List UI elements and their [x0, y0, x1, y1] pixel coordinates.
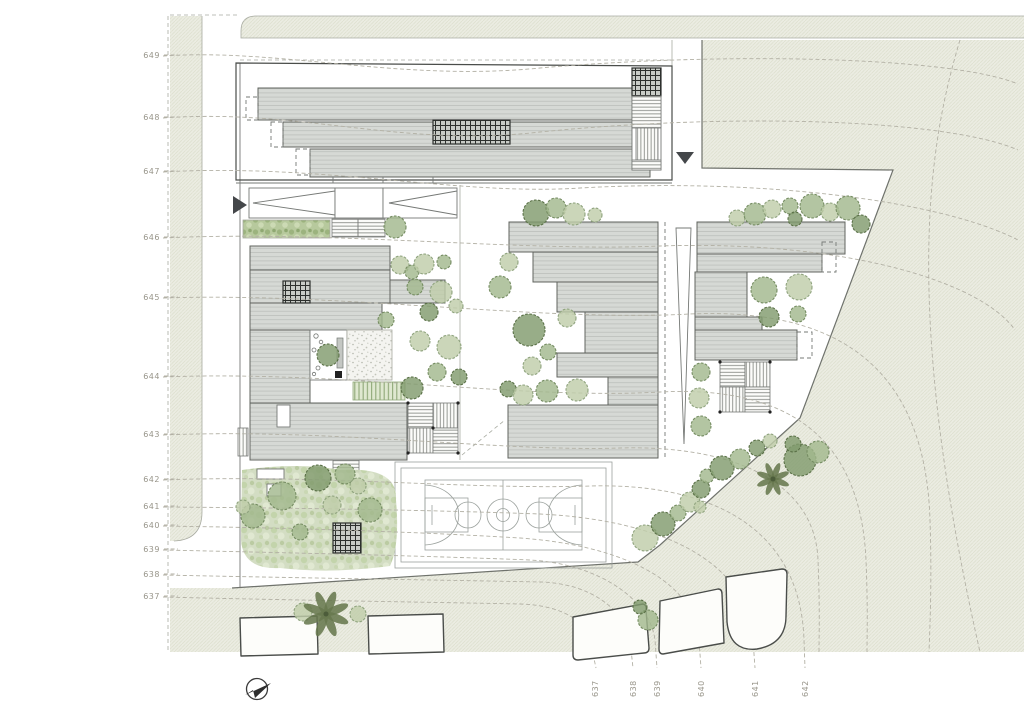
tree: [692, 363, 710, 381]
tree: [751, 277, 777, 303]
elevation-label-638: 638: [143, 570, 160, 579]
tree: [744, 203, 766, 225]
entrance-stairs: [332, 219, 385, 237]
building-north-stair-flight-3: [632, 160, 661, 170]
tree: [852, 215, 870, 233]
deck-square: [433, 403, 458, 428]
tree: [523, 200, 549, 226]
central-corridor: [460, 185, 505, 460]
elevation-label-bottom-640: 640: [697, 680, 706, 697]
tree: [694, 501, 706, 513]
tree: [268, 482, 296, 510]
elevation-label-642: 642: [143, 475, 160, 484]
tree: [317, 344, 339, 366]
garden-pergola-grid: [333, 523, 361, 553]
existing-building-blob-3: [726, 569, 787, 649]
retaining-wedge: [676, 228, 691, 444]
site-plan-canvas: 649648647646645644643642641640639638637 …: [0, 0, 1024, 724]
court-playing-field: [425, 480, 582, 550]
basketball-court: [395, 462, 612, 568]
north-arrow-icon: [245, 679, 271, 700]
tree: [729, 210, 745, 226]
tree: [786, 274, 812, 300]
tree: [430, 281, 452, 303]
building-east-deck: [718, 360, 771, 413]
tree: [350, 606, 366, 622]
building-west-deck: [406, 401, 459, 454]
deck-square: [745, 387, 770, 412]
tree: [588, 208, 602, 222]
court-key-left: [425, 498, 468, 532]
elevation-label-640: 640: [143, 521, 160, 530]
patio-room-stove: [335, 371, 342, 378]
building-west-stairs-west: [238, 428, 248, 456]
deck-post: [406, 401, 409, 404]
building-west: [238, 246, 460, 472]
elevation-label-643: 643: [143, 430, 160, 439]
elevation-label-bottom-641: 641: [751, 680, 760, 697]
tree: [437, 335, 461, 359]
elevation-label-bottom-638: 638: [629, 680, 638, 697]
existing-building-rect-2: [368, 614, 444, 654]
tree: [437, 255, 451, 269]
elevation-label-641: 641: [143, 502, 160, 511]
building-west-roof-opening: [277, 405, 290, 427]
tree: [633, 600, 647, 614]
tree: [410, 331, 430, 351]
deck-post: [718, 360, 721, 363]
elevation-label-644: 644: [143, 372, 160, 381]
court-apron: [395, 462, 612, 568]
tree: [489, 276, 511, 298]
tree: [691, 416, 711, 436]
building-north-stair-flight-2: [636, 128, 658, 160]
tree: [350, 478, 366, 494]
elevation-label-639: 639: [143, 545, 160, 554]
tree: [546, 198, 566, 218]
tree: [540, 344, 556, 360]
existing-building-blob-2: [659, 589, 724, 654]
deck-post: [768, 360, 771, 363]
tree: [449, 299, 463, 313]
tree: [563, 203, 585, 225]
building-north-stair-flight-1: [632, 96, 661, 128]
tree: [384, 216, 406, 238]
elevation-label-646: 646: [143, 233, 160, 242]
tree: [407, 279, 423, 295]
tree: [513, 385, 533, 405]
deck-square: [433, 428, 458, 453]
tree: [782, 198, 798, 214]
tree: [420, 303, 438, 321]
building-west-pergola-grid: [283, 281, 310, 303]
deck-post: [406, 451, 409, 454]
deck-post: [768, 410, 771, 413]
building-north: [236, 63, 672, 183]
entrance-triangle-down-icon: [676, 152, 694, 164]
tree: [807, 441, 829, 463]
tree: [414, 254, 434, 274]
tree: [730, 449, 750, 469]
corridor-ramp-dash: [462, 420, 505, 455]
court-threepoint-left: [425, 485, 459, 545]
road-top: [241, 16, 1024, 38]
elevation-label-637: 637: [143, 592, 160, 601]
palm-trunk: [324, 612, 329, 617]
tree: [236, 500, 250, 514]
tree: [451, 369, 467, 385]
elevation-label-bottom-642: 642: [801, 680, 810, 697]
site-plan-drawing: 649648647646645644643642641640639638637 …: [0, 0, 1024, 724]
tree: [558, 309, 576, 327]
elevation-label-648: 648: [143, 113, 160, 122]
deck-post: [456, 451, 459, 454]
elevation-label-645: 645: [143, 293, 160, 302]
garden-bench: [257, 469, 284, 479]
building-north-skylight-grid: [433, 120, 510, 144]
elevation-label-bottom-637: 637: [591, 680, 600, 697]
tree: [378, 312, 394, 328]
tree: [759, 307, 779, 327]
tree: [763, 200, 781, 218]
building-west-trellis: [353, 382, 405, 400]
building-west-stone-paving: [347, 330, 392, 380]
tree: [785, 436, 801, 452]
tree: [358, 498, 382, 522]
deck-square: [408, 428, 433, 453]
tree: [292, 524, 308, 540]
palm-trunk: [771, 477, 776, 482]
tree: [566, 379, 588, 401]
elevation-label-649: 649: [143, 51, 160, 60]
tree: [323, 496, 341, 514]
elevation-label-647: 647: [143, 167, 160, 176]
entrance-lobby: [335, 188, 383, 218]
deck-post: [431, 426, 434, 429]
tree: [428, 363, 446, 381]
tree: [749, 440, 765, 456]
tree: [401, 377, 423, 399]
deck-post: [718, 410, 721, 413]
tree: [536, 380, 558, 402]
deck-square: [408, 403, 433, 428]
deck-post: [456, 401, 459, 404]
tree: [763, 434, 777, 448]
road-vertical: [170, 16, 202, 541]
deck-square: [745, 362, 770, 387]
tree: [788, 212, 802, 226]
tree: [500, 253, 518, 271]
tree: [513, 314, 545, 346]
tree: [800, 194, 824, 218]
elevation-label-bottom-639: 639: [653, 680, 662, 697]
entrance-planting-strip: [243, 220, 330, 238]
elevation-labels-bottom: 637638639640641642: [591, 680, 810, 697]
tree: [790, 306, 806, 322]
entrance-canopy-east: [383, 188, 457, 218]
deck-square: [720, 362, 745, 387]
building-north-stair-grid: [632, 68, 661, 96]
tree: [689, 388, 709, 408]
tree: [305, 465, 331, 491]
tree: [523, 357, 541, 375]
deck-square: [720, 387, 745, 412]
